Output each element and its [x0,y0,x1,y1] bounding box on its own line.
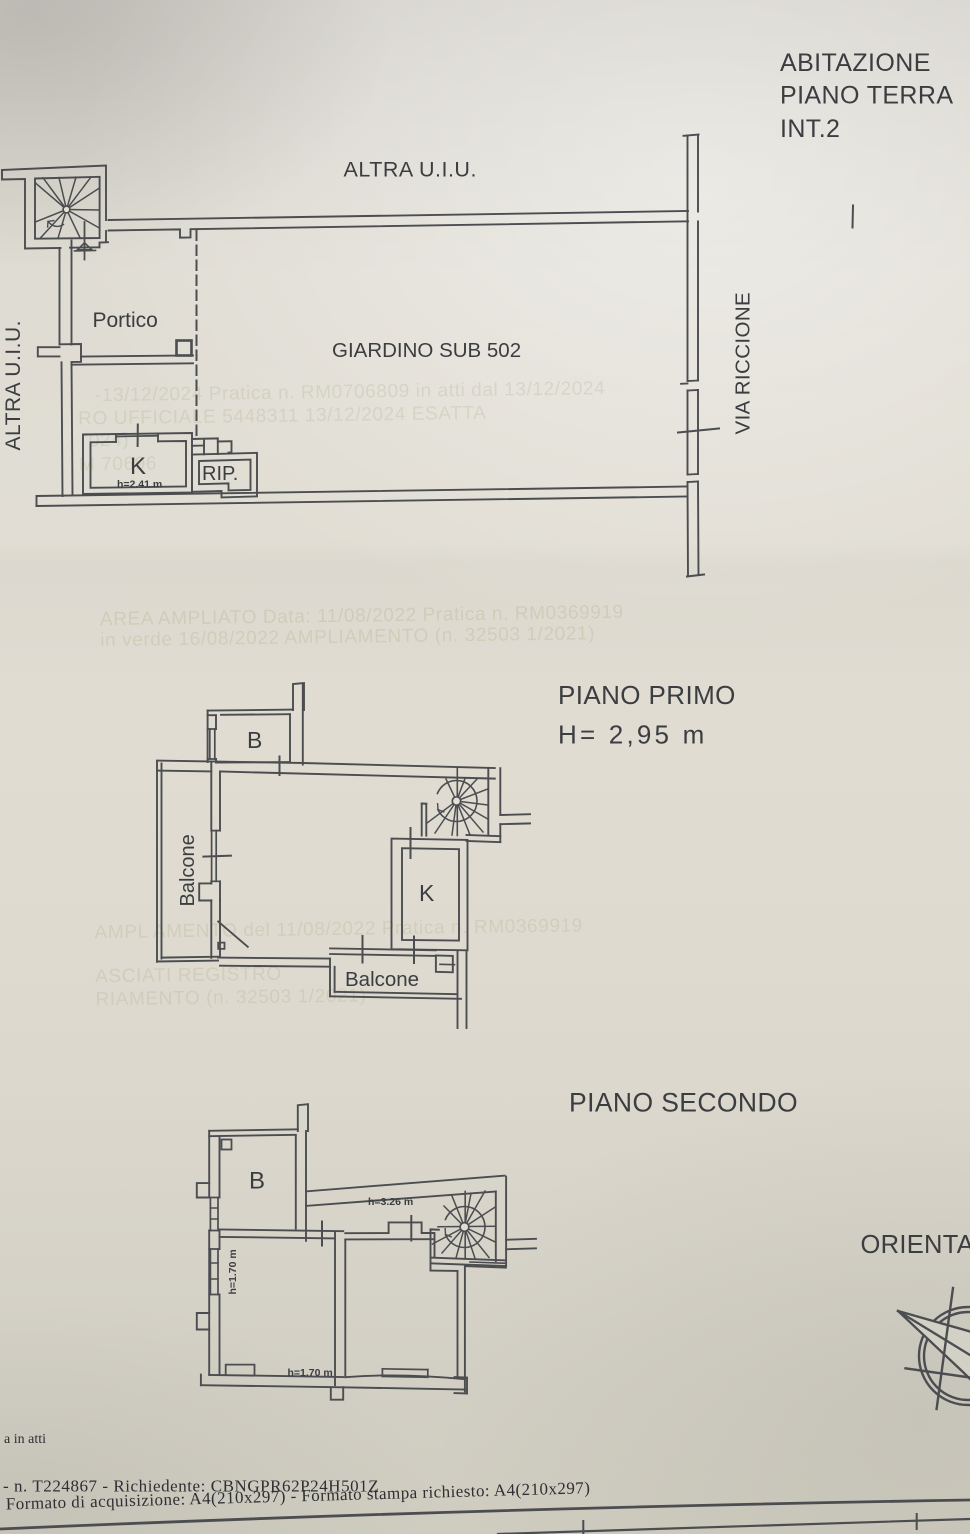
svg-text:RIP.: RIP. [202,463,238,485]
svg-text:B: B [247,727,262,753]
svg-text:h=1.70 m: h=1.70 m [227,1249,239,1294]
svg-text:ALTRA U.I.U.: ALTRA U.I.U. [2,320,25,450]
svg-text:K: K [130,453,146,480]
svg-text:Balcone: Balcone [345,968,419,991]
svg-text:K: K [419,880,435,906]
svg-text:AMPL AMENTO del 11/08/2022 Pra: AMPL AMENTO del 11/08/2022 Pratica n. RM… [94,915,583,943]
svg-text:GIARDINO SUB 502: GIARDINO SUB 502 [332,339,521,362]
svg-text:RIAMENTO (n. 32503 1/2021): RIAMENTO (n. 32503 1/2021) [95,985,366,1010]
svg-text:ORIENTA: ORIENTA [861,1231,970,1259]
svg-text:INT.2: INT.2 [780,115,840,143]
svg-text:-13/12/2024 Pratica n. RM07068: -13/12/2024 Pratica n. RM0706809 in atti… [95,378,606,406]
svg-text:RO UFFICIALE 5448311 13/12/202: RO UFFICIALE 5448311 13/12/2024 ESATTA [78,403,487,430]
svg-text:h=2.41 m: h=2.41 m [117,479,162,491]
svg-text:ASCIATI REGISTRO: ASCIATI REGISTRO [95,964,282,988]
svg-text:h=1.70 m: h=1.70 m [288,1367,333,1379]
svg-text:Balcone: Balcone [177,834,199,906]
svg-text:H= 2,95 m: H= 2,95 m [558,720,707,750]
svg-text:Portico: Portico [93,309,158,332]
svg-text:PIANO TERRA: PIANO TERRA [780,82,953,110]
svg-text:ABITAZIONE: ABITAZIONE [780,49,931,77]
svg-text:PIANO SECONDO: PIANO SECONDO [569,1088,798,1118]
svg-text:VIA RICCIONE: VIA RICCIONE [732,292,755,435]
svg-text:a in atti: a in atti [4,1432,46,1447]
svg-text:ALTRA U.I.U.: ALTRA U.I.U. [344,158,477,182]
svg-text:B: B [249,1168,265,1195]
svg-text:PIANO PRIMO: PIANO PRIMO [558,680,736,710]
svg-text:h=3.26 m: h=3.26 m [368,1196,413,1208]
